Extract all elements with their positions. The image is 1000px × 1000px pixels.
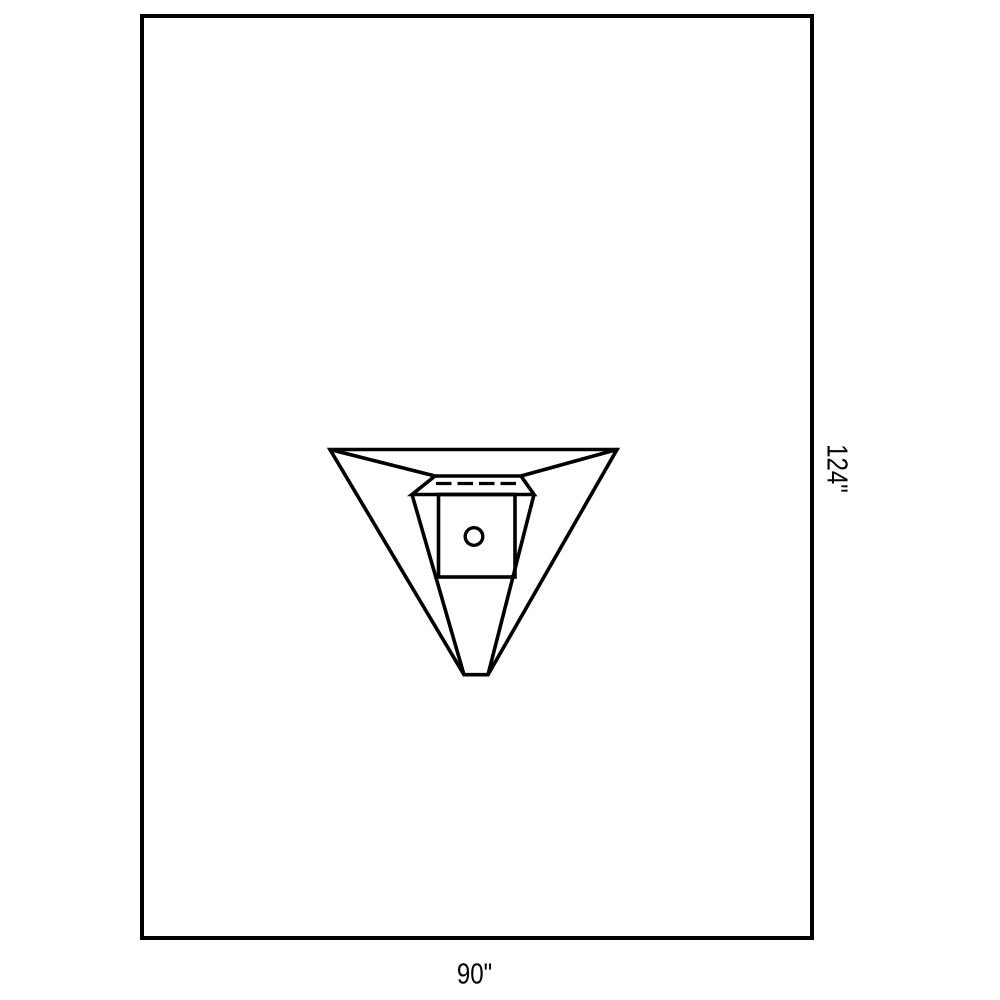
svg-text:90": 90" — [457, 957, 492, 990]
svg-text:124": 124" — [821, 444, 854, 493]
